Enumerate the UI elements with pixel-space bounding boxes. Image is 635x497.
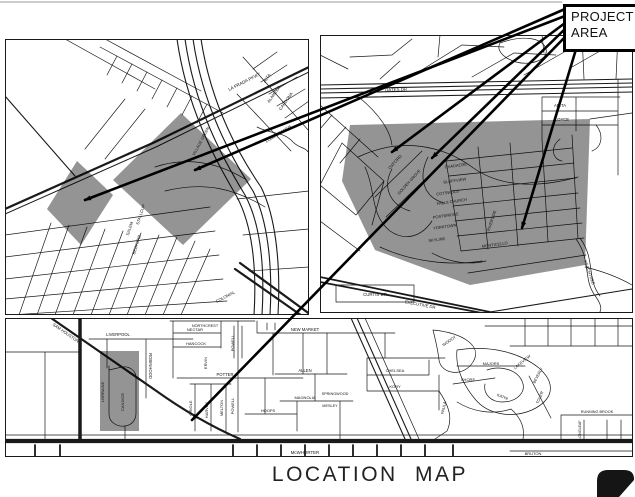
street-label: LAKEVIEW [513,353,532,370]
street-label: LONG BRANCH [264,124,292,144]
street-label: POWELL [230,397,235,414]
street-label: SAM HOUSTON [52,322,80,344]
street-label: McWHORTER [291,450,319,455]
street-label: CARDONA [278,91,294,111]
major-road [51,318,240,439]
street-label: LOYCE [555,117,569,122]
street-label: LONGLEAF [578,420,582,440]
location-map-page: LA PRADA PKWYALTAALAMEDACARDONALONG BRAN… [0,0,635,497]
street-label: HOOPS [261,408,276,413]
street-label: SPRINGWOOD [322,392,349,396]
street-label: ALTA [262,73,272,84]
street-label: CURTIS DR [363,292,387,297]
street-label: NECTAR [187,327,203,332]
street-label: MELTON [219,400,224,416]
map-panel-top-left: LA PRADA PKWYALTAALAMEDACARDONALONG BRAN… [5,39,309,315]
street-label: KATHI [496,392,509,401]
callout-line-2: AREA [571,25,635,41]
callout-line-1: PROJECT [571,9,635,25]
project-area-callout: PROJECT AREA [563,4,635,52]
street-label: ROBINHOOD [148,353,153,379]
street-label: HARVEY [204,401,209,418]
street-label: SALEM [125,221,134,237]
street-label: ALLEN [298,368,311,373]
street-label: LA PRADA PKWY [227,71,261,92]
street-label: POTTER [217,372,234,377]
street-label: HANCOCK [186,341,206,346]
project-area-shading [47,161,113,245]
street-label: WOODY [441,334,457,347]
project-area-shading [100,351,139,431]
street-label: COLONIAL [215,289,237,304]
street-label: PEACHTREE [583,260,597,286]
street-label: CHELSEA [386,368,405,373]
street-label: ORIOLE [188,400,193,415]
street-label: MESLEY [322,404,338,408]
street-label: MAGNOLIA [294,395,315,400]
street-label: RUNNING BROOK [581,410,614,414]
street-label: BEVERLY [532,367,544,385]
street-label: STALLCUP [135,203,146,225]
street-label: PAULA [440,401,448,415]
street-label: KORY [389,384,401,389]
street-label: MAJORS [483,361,500,366]
street-label: ANITA [554,103,566,108]
street-label: BEDFORD [131,234,142,255]
street-label: BRUTON [525,451,542,456]
street-label: LORRAINE [100,381,105,402]
map-panel-top-right: OATES DRANITALOYCEOXFORDGOLDEN GROVECHAD… [320,35,633,313]
street-label: POWELL [230,334,235,351]
street-label: CANDICE [120,393,125,411]
street-label: LIVERPOOL [106,332,130,337]
map-panel-bottom: SAM HOUSTONLIVERPOOLROBINHOODLORRAINECAN… [5,318,633,457]
map-title: LOCATION MAP [0,463,635,487]
street-label: NEW MARKET [291,327,320,332]
street-label: SHORE [461,377,476,382]
street-label: ERVIN [203,357,208,369]
street-label: OATES DR [385,87,407,93]
